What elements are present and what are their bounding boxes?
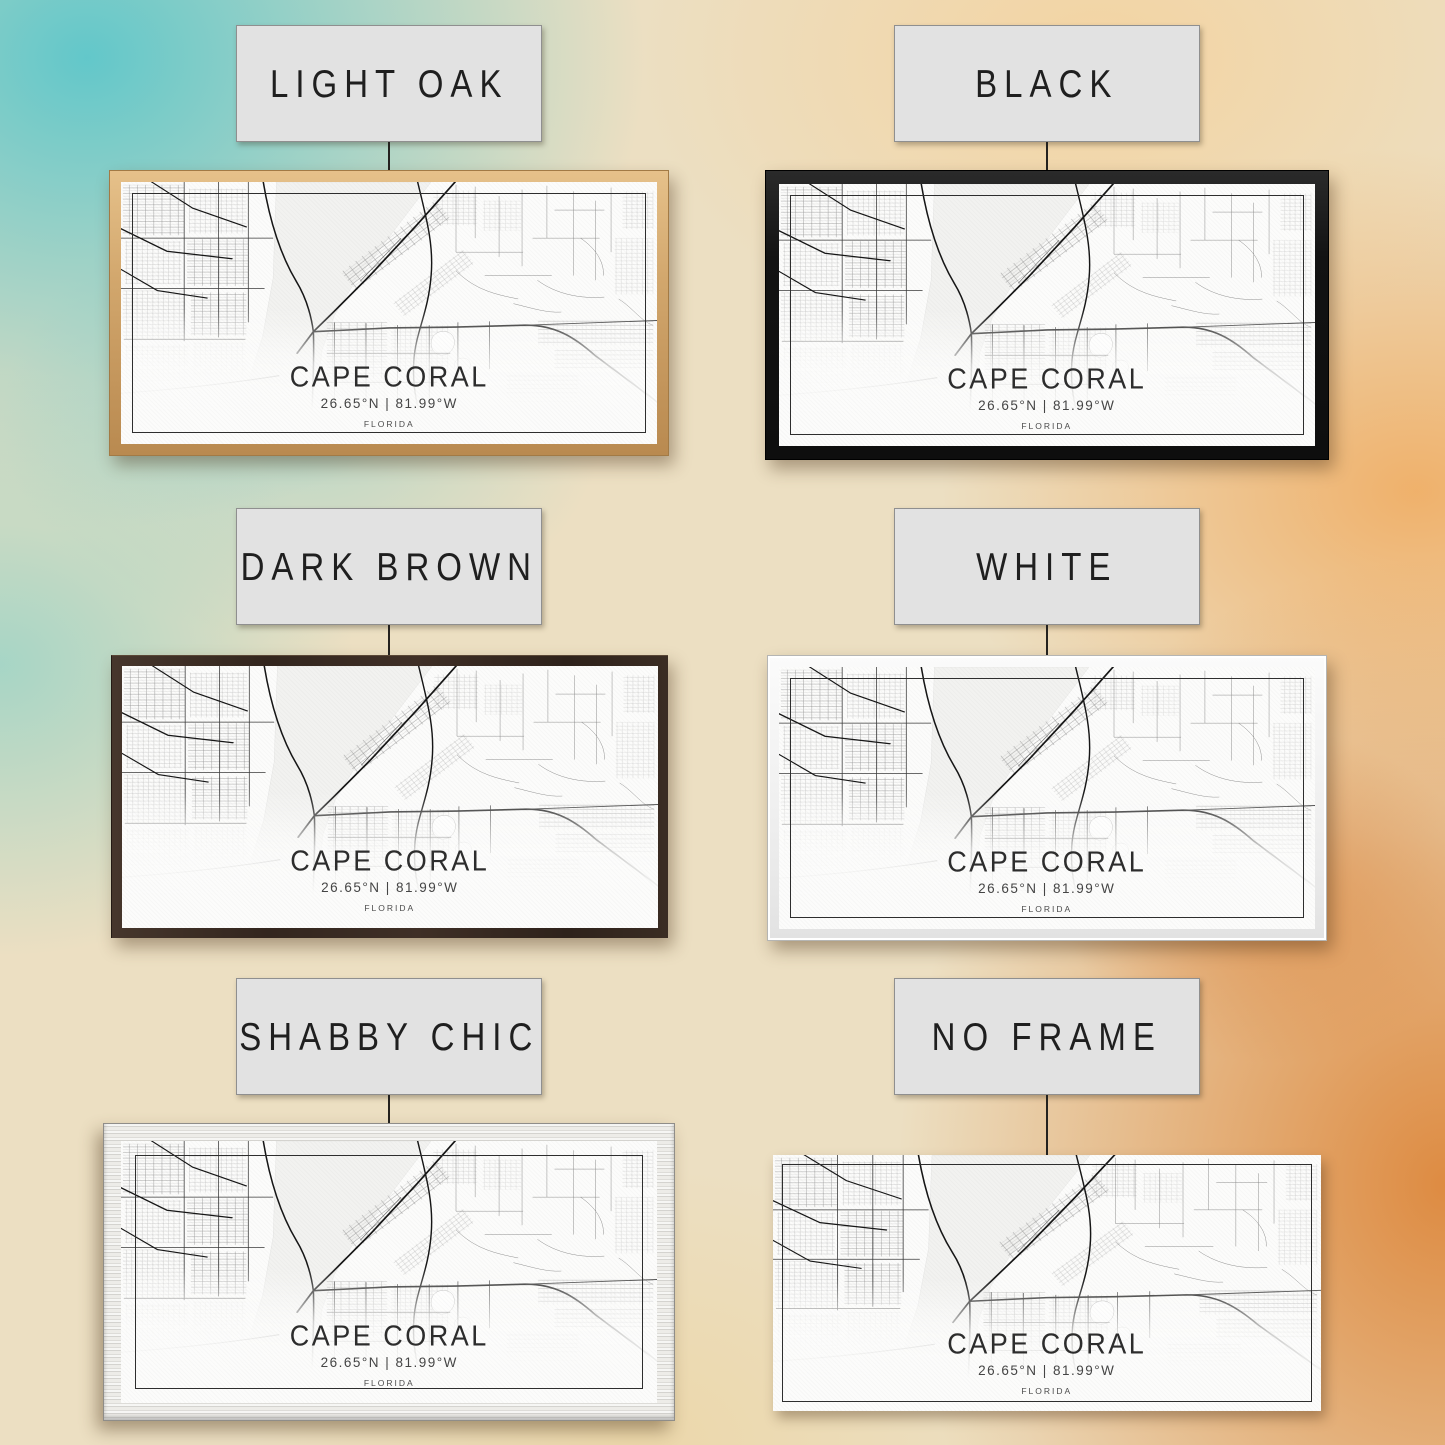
print-canvas: CAPE CORAL 26.65°N | 81.99°W FLORIDA bbox=[779, 667, 1315, 929]
print-canvas: CAPE CORAL 26.65°N | 81.99°W FLORIDA bbox=[121, 182, 657, 444]
map-coordinates: 26.65°N | 81.99°W bbox=[947, 1363, 1146, 1378]
option-card-white: WHITE bbox=[894, 508, 1200, 625]
map-coordinates: 26.65°N | 81.99°W bbox=[947, 881, 1146, 896]
map-state: FLORIDA bbox=[290, 419, 489, 429]
frame-option-panel-dark-brown: DARK BROWN bbox=[28, 482, 751, 952]
option-label-white: WHITE bbox=[976, 544, 1117, 589]
option-label-no-frame: NO FRAME bbox=[932, 1014, 1162, 1059]
map-caption: CAPE CORAL 26.65°N | 81.99°W FLORIDA bbox=[947, 364, 1146, 431]
option-card-dark-brown: DARK BROWN bbox=[236, 508, 542, 625]
unframed-print: CAPE CORAL 26.65°N | 81.99°W FLORIDA bbox=[773, 1155, 1321, 1411]
hanging-string bbox=[1046, 625, 1048, 655]
map-caption: CAPE CORAL 26.65°N | 81.99°W FLORIDA bbox=[290, 362, 489, 429]
product-options-wall: LIGHT OAK bbox=[0, 0, 1445, 1445]
map-state: FLORIDA bbox=[947, 1386, 1146, 1396]
framed-print-black: CAPE CORAL 26.65°N | 81.99°W FLORIDA bbox=[765, 170, 1329, 460]
map-city-title: CAPE CORAL bbox=[947, 846, 1146, 879]
hanging-string bbox=[388, 1095, 390, 1123]
hanging-string bbox=[1046, 142, 1048, 170]
framed-print-light-oak: CAPE CORAL 26.65°N | 81.99°W FLORIDA bbox=[109, 170, 669, 456]
option-card-no-frame: NO FRAME bbox=[894, 978, 1200, 1095]
map-city-title: CAPE CORAL bbox=[290, 845, 489, 878]
map-coordinates: 26.65°N | 81.99°W bbox=[947, 398, 1146, 413]
map-city-title: CAPE CORAL bbox=[290, 361, 489, 394]
hanging-string bbox=[388, 625, 390, 655]
print-canvas: CAPE CORAL 26.65°N | 81.99°W FLORIDA bbox=[779, 184, 1315, 446]
map-caption: CAPE CORAL 26.65°N | 81.99°W FLORIDA bbox=[290, 1321, 489, 1388]
map-city-title: CAPE CORAL bbox=[947, 1328, 1146, 1361]
map-caption: CAPE CORAL 26.65°N | 81.99°W FLORIDA bbox=[947, 1329, 1146, 1396]
option-card-shabby-chic: SHABBY CHIC bbox=[236, 978, 542, 1095]
option-label-shabby-chic: SHABBY CHIC bbox=[239, 1014, 539, 1059]
print-canvas: CAPE CORAL 26.65°N | 81.99°W FLORIDA bbox=[773, 1155, 1321, 1411]
hanging-string bbox=[1046, 1095, 1048, 1155]
framed-print-dark-brown: CAPE CORAL 26.65°N | 81.99°W FLORIDA bbox=[111, 655, 668, 938]
option-label-light-oak: LIGHT OAK bbox=[270, 61, 508, 106]
option-card-black: BLACK bbox=[894, 25, 1200, 142]
framed-print-shabby-chic: CAPE CORAL 26.65°N | 81.99°W FLORIDA bbox=[103, 1123, 675, 1421]
map-city-title: CAPE CORAL bbox=[947, 363, 1146, 396]
frame-option-panel-shabby-chic: SHABBY CHIC bbox=[28, 952, 751, 1445]
option-label-black: BLACK bbox=[975, 61, 1118, 106]
map-state: FLORIDA bbox=[947, 421, 1146, 431]
map-coordinates: 26.65°N | 81.99°W bbox=[290, 396, 489, 411]
frame-option-panel-black: BLACK bbox=[686, 0, 1409, 482]
print-canvas: CAPE CORAL 26.65°N | 81.99°W FLORIDA bbox=[121, 1141, 657, 1403]
map-state: FLORIDA bbox=[290, 1378, 489, 1388]
frame-option-panel-light-oak: LIGHT OAK bbox=[28, 0, 751, 482]
map-state: FLORIDA bbox=[947, 904, 1146, 914]
option-label-dark-brown: DARK BROWN bbox=[241, 544, 538, 589]
print-canvas: CAPE CORAL 26.65°N | 81.99°W FLORIDA bbox=[122, 666, 658, 928]
framed-print-white: CAPE CORAL 26.65°N | 81.99°W FLORIDA bbox=[767, 655, 1327, 941]
option-card-light-oak: LIGHT OAK bbox=[236, 25, 542, 142]
map-city-title: CAPE CORAL bbox=[290, 1320, 489, 1353]
map-coordinates: 26.65°N | 81.99°W bbox=[290, 1355, 489, 1370]
frame-option-panel-white: WHITE bbox=[686, 482, 1409, 952]
map-caption: CAPE CORAL 26.65°N | 81.99°W FLORIDA bbox=[947, 847, 1146, 914]
map-caption: CAPE CORAL 26.65°N | 81.99°W FLORIDA bbox=[290, 846, 489, 913]
hanging-string bbox=[388, 142, 390, 170]
map-state: FLORIDA bbox=[290, 903, 489, 913]
map-coordinates: 26.65°N | 81.99°W bbox=[290, 880, 489, 895]
frame-option-panel-no-frame: NO FRAME bbox=[686, 952, 1409, 1445]
